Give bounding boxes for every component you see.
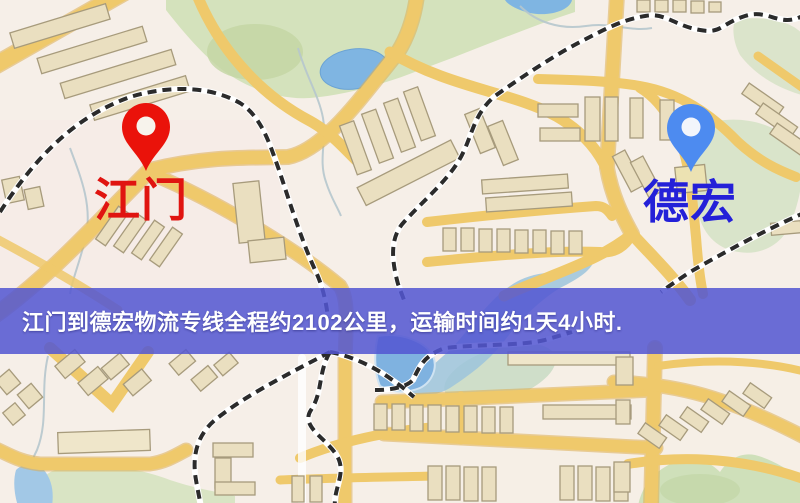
- red-map-pin-hole: [137, 117, 156, 136]
- route-info-banner: 江门到德宏物流专线全程约2102公里，运输时间约1天4小时.: [0, 288, 800, 354]
- destination-label: 德宏: [643, 179, 737, 225]
- origin-label: 江门: [94, 177, 188, 223]
- map-canvas[interactable]: 江门 德宏 江门到德宏物流专线全程约2102公里，运输时间约1天4小时.: [0, 0, 800, 503]
- route-info-text: 江门到德宏物流专线全程约2102公里，运输时间约1天4小时.: [22, 305, 623, 337]
- blue-map-pin-hole: [682, 118, 701, 137]
